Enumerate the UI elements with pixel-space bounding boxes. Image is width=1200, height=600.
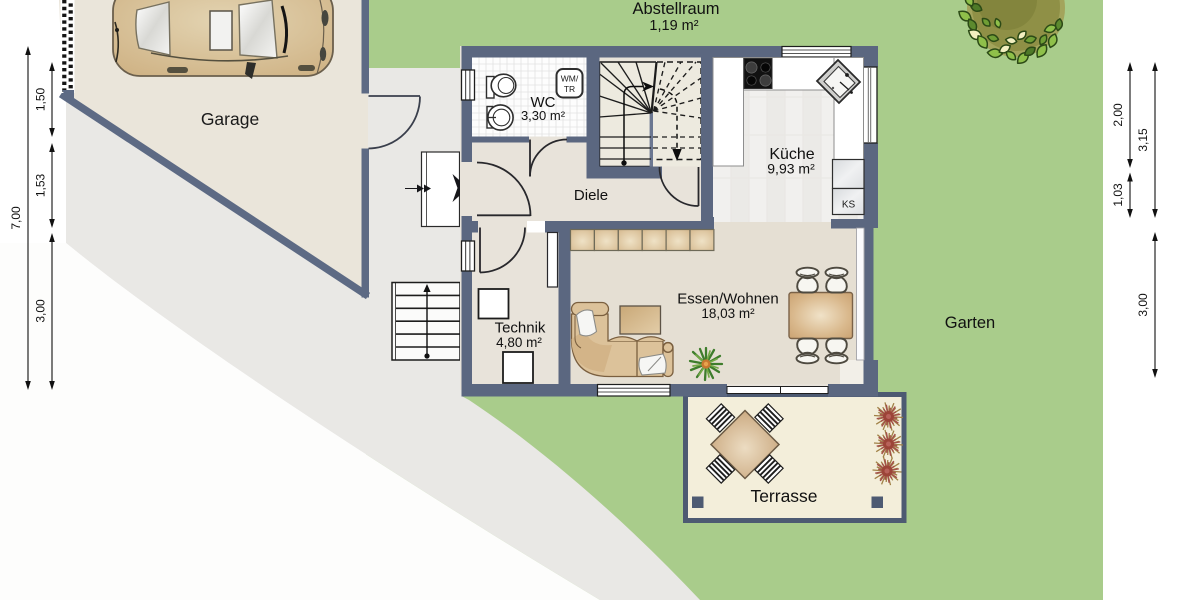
svg-text:Diele: Diele xyxy=(574,187,608,204)
svg-text:TR: TR xyxy=(564,84,575,94)
svg-text:3,15: 3,15 xyxy=(1136,128,1150,152)
svg-text:WM/: WM/ xyxy=(561,74,579,84)
svg-text:KS: KS xyxy=(842,200,856,211)
svg-text:Abstellraum: Abstellraum xyxy=(632,0,719,18)
svg-text:Essen/Wohnen: Essen/Wohnen xyxy=(677,291,778,308)
svg-text:1,50: 1,50 xyxy=(34,87,48,111)
svg-text:18,03 m²: 18,03 m² xyxy=(701,306,755,321)
svg-text:7,00: 7,00 xyxy=(9,206,23,230)
svg-text:1,03: 1,03 xyxy=(1111,183,1125,207)
svg-text:Garage: Garage xyxy=(201,109,259,129)
svg-text:3,00: 3,00 xyxy=(34,299,48,323)
svg-text:3,00: 3,00 xyxy=(1136,293,1150,317)
svg-text:Terrasse: Terrasse xyxy=(750,486,817,506)
svg-text:1,19 m²: 1,19 m² xyxy=(649,18,698,34)
svg-text:2,00: 2,00 xyxy=(1111,103,1125,127)
svg-text:4,80 m²: 4,80 m² xyxy=(496,335,542,350)
svg-text:3,30 m²: 3,30 m² xyxy=(521,108,566,123)
svg-text:Garten: Garten xyxy=(945,314,995,332)
svg-text:Technik: Technik xyxy=(495,320,546,337)
svg-text:1,53: 1,53 xyxy=(34,173,48,197)
svg-text:9,93 m²: 9,93 m² xyxy=(767,161,815,177)
